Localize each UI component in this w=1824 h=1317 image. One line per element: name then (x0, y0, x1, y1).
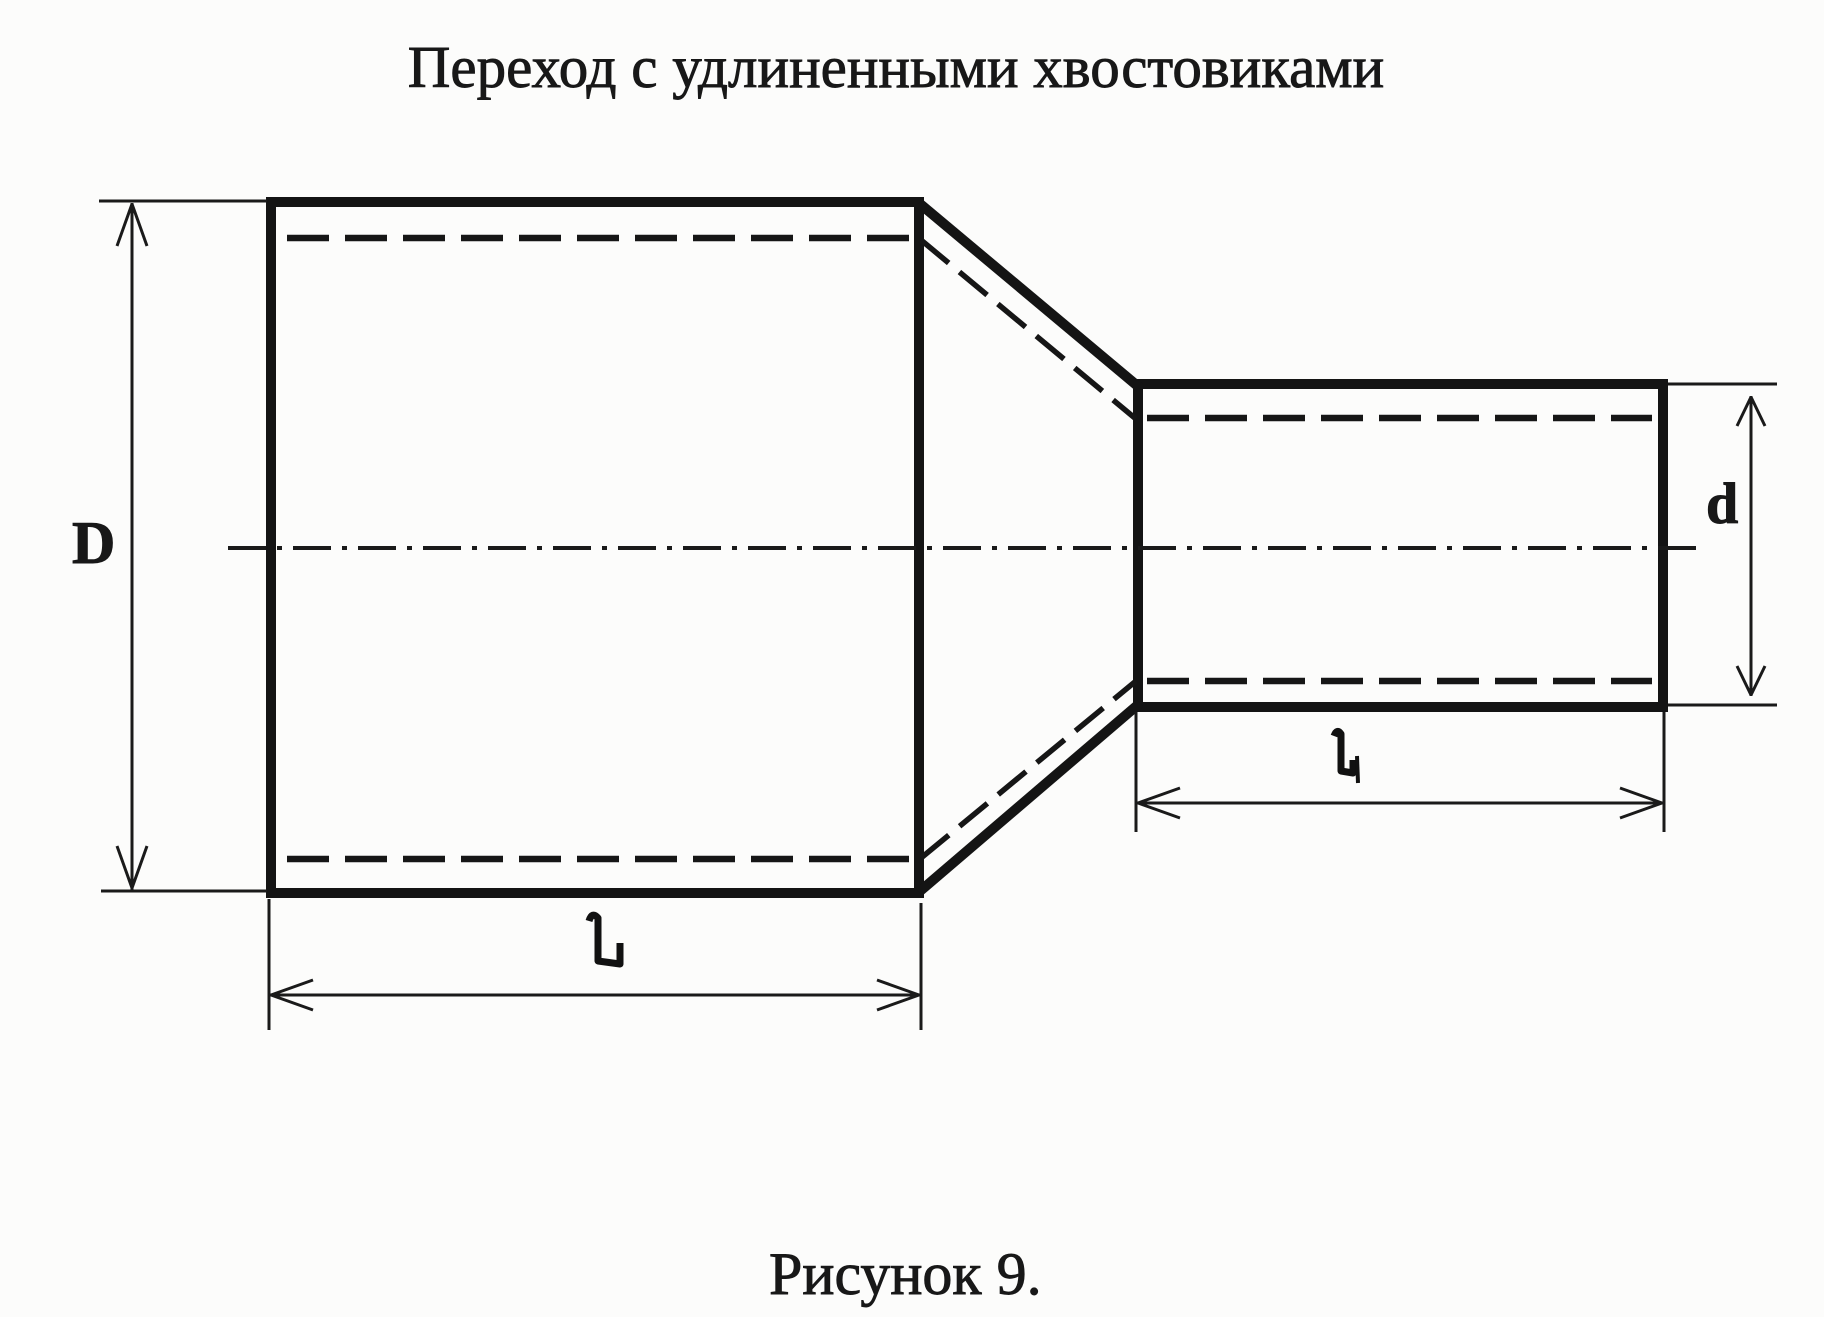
svg-text:d: d (1706, 471, 1738, 536)
svg-text:Рисунок 9.: Рисунок 9. (769, 1241, 1042, 1307)
svg-text:D: D (72, 510, 115, 576)
svg-text:Переход с удлиненными хвостови: Переход с удлиненными хвостовиками (408, 34, 1384, 100)
